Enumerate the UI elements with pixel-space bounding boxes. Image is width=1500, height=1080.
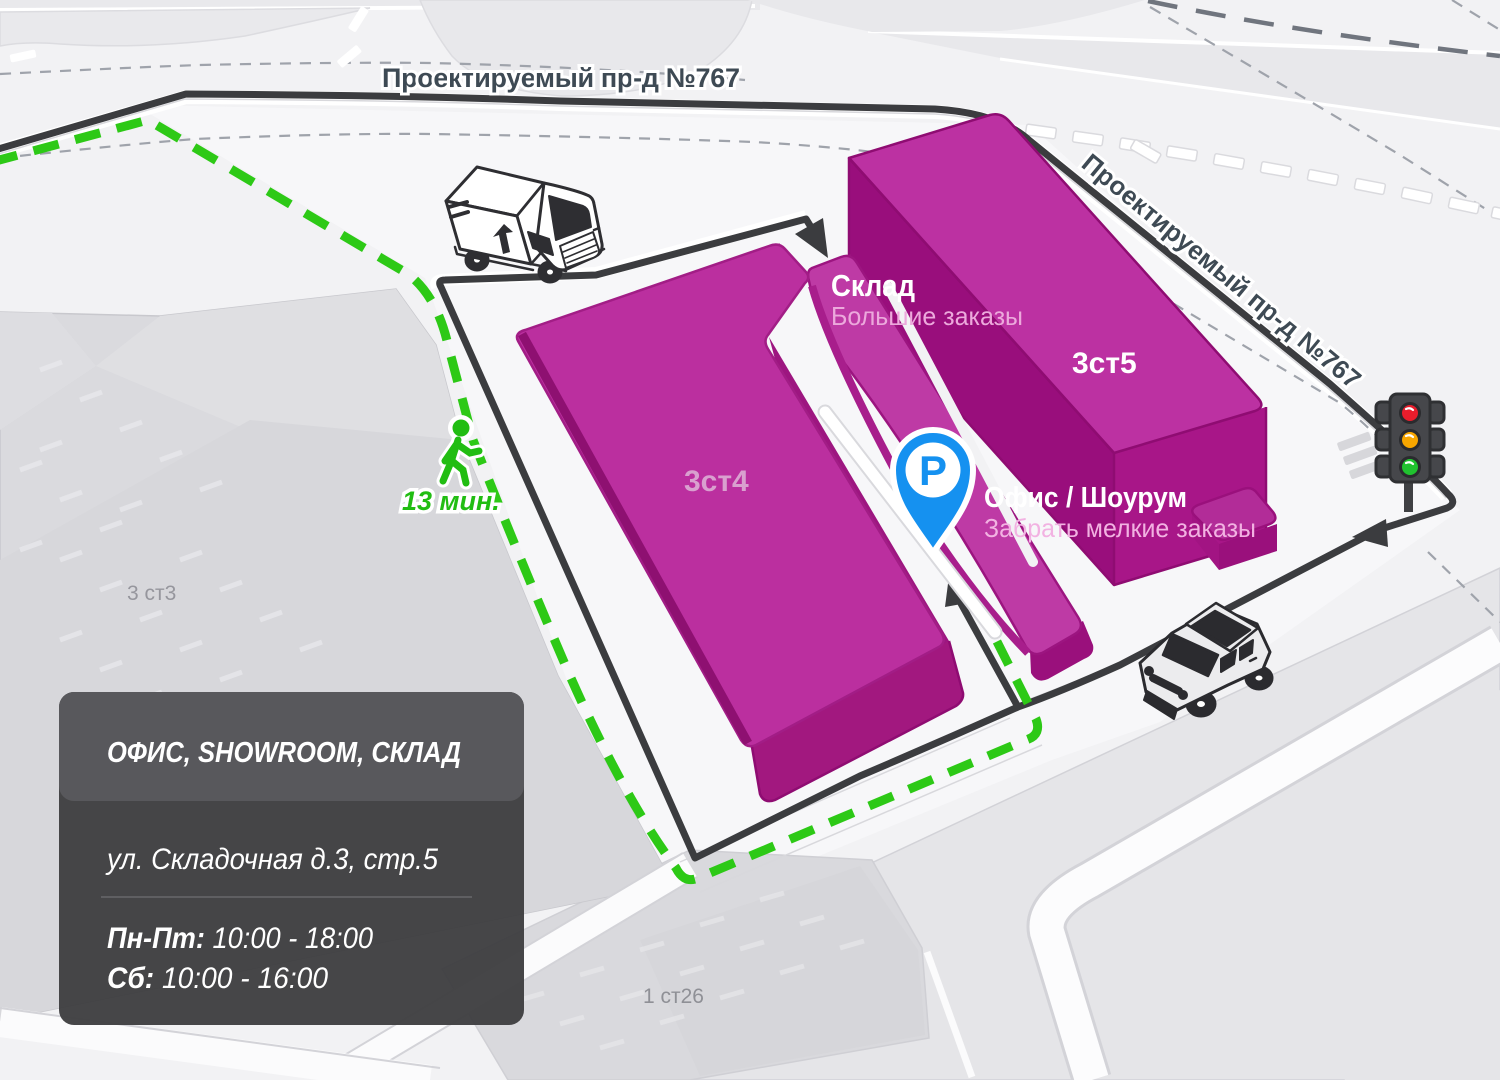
svg-text:1 ст26: 1 ст26 bbox=[643, 985, 704, 1008]
svg-text:Сб: 10:00 - 16:00: Сб: 10:00 - 16:00 bbox=[107, 962, 328, 995]
svg-text:Склад: Склад bbox=[831, 268, 915, 303]
svg-text:3 ст3: 3 ст3 bbox=[127, 582, 176, 605]
svg-text:3ст4: 3ст4 bbox=[684, 465, 749, 498]
svg-text:13 мин.: 13 мин. bbox=[402, 486, 500, 516]
svg-text:ОФИС, SHOWROOM, СКЛАД: ОФИС, SHOWROOM, СКЛАД bbox=[107, 737, 461, 769]
svg-text:Забрать мелкие заказы: Забрать мелкие заказы bbox=[984, 513, 1256, 543]
svg-text:3ст5: 3ст5 bbox=[1072, 347, 1137, 380]
svg-text:Проектируемый пр-д №767: Проектируемый пр-д №767 bbox=[382, 63, 740, 93]
svg-text:Пн-Пт: 10:00 - 18:00: Пн-Пт: 10:00 - 18:00 bbox=[107, 922, 373, 955]
svg-text:ул. Складочная д.3, стр.5: ул. Складочная д.3, стр.5 bbox=[105, 843, 438, 876]
svg-text:Большие заказы: Большие заказы bbox=[831, 301, 1023, 331]
svg-text:P: P bbox=[919, 447, 947, 494]
svg-text:Офис / Шоурум: Офис / Шоурум bbox=[984, 482, 1187, 514]
